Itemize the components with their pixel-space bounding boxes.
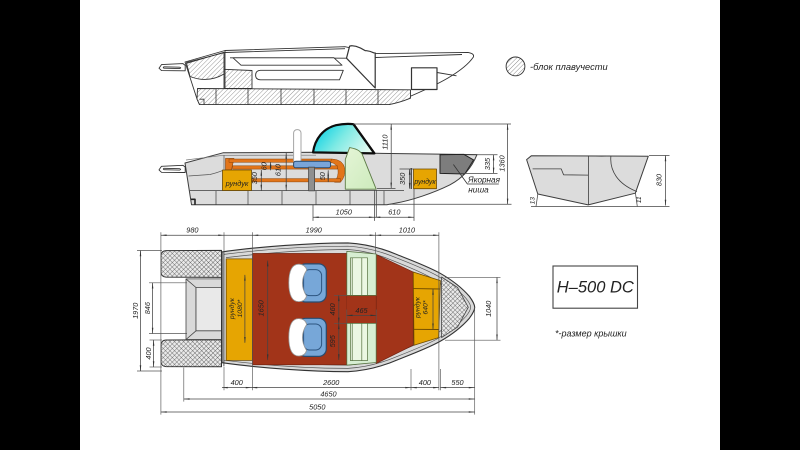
svg-text:2600: 2600 [322, 378, 339, 387]
svg-text:Якорная: Якорная [467, 175, 501, 184]
svg-text:640*: 640* [422, 300, 429, 314]
svg-text:1080*: 1080* [237, 299, 244, 317]
svg-text:11: 11 [636, 196, 643, 203]
svg-text:рундук: рундук [228, 297, 236, 320]
svg-text:1650: 1650 [257, 300, 266, 316]
svg-text:рундук: рундук [413, 296, 421, 319]
svg-text:60: 60 [259, 162, 268, 170]
svg-text:350: 350 [398, 173, 407, 185]
svg-text:610: 610 [274, 164, 283, 176]
svg-text:1110: 1110 [380, 135, 389, 150]
svg-text:5050: 5050 [309, 403, 325, 412]
svg-text:830: 830 [654, 174, 663, 186]
svg-text:1040: 1040 [484, 301, 493, 317]
svg-text:400: 400 [231, 378, 243, 387]
svg-text:1990: 1990 [306, 226, 322, 235]
svg-text:980: 980 [186, 226, 198, 235]
svg-text:1360: 1360 [497, 155, 506, 171]
svg-text:846: 846 [143, 301, 152, 314]
svg-text:1010: 1010 [399, 226, 415, 235]
svg-text:1970: 1970 [131, 303, 140, 319]
svg-text:50: 50 [318, 172, 327, 180]
svg-text:610: 610 [388, 208, 400, 217]
svg-text:4650: 4650 [320, 390, 336, 399]
svg-text:*-размер крышки: *-размер крышки [555, 329, 627, 339]
svg-text:ниша: ниша [468, 186, 489, 195]
svg-text:350: 350 [250, 172, 259, 184]
svg-text:H–500 DC: H–500 DC [557, 279, 634, 297]
svg-text:-блок плавучести: -блок плавучести [530, 62, 608, 72]
svg-text:рундук: рундук [225, 179, 249, 188]
svg-text:550: 550 [451, 378, 463, 387]
svg-text:595: 595 [328, 334, 337, 347]
svg-text:1050: 1050 [336, 208, 352, 217]
svg-text:13: 13 [530, 197, 537, 205]
svg-text:400: 400 [144, 347, 153, 359]
svg-text:рундук: рундук [413, 178, 436, 186]
svg-text:465: 465 [355, 306, 368, 315]
svg-text:400: 400 [419, 378, 431, 387]
svg-text:335: 335 [483, 157, 492, 170]
svg-text:460: 460 [328, 303, 337, 315]
